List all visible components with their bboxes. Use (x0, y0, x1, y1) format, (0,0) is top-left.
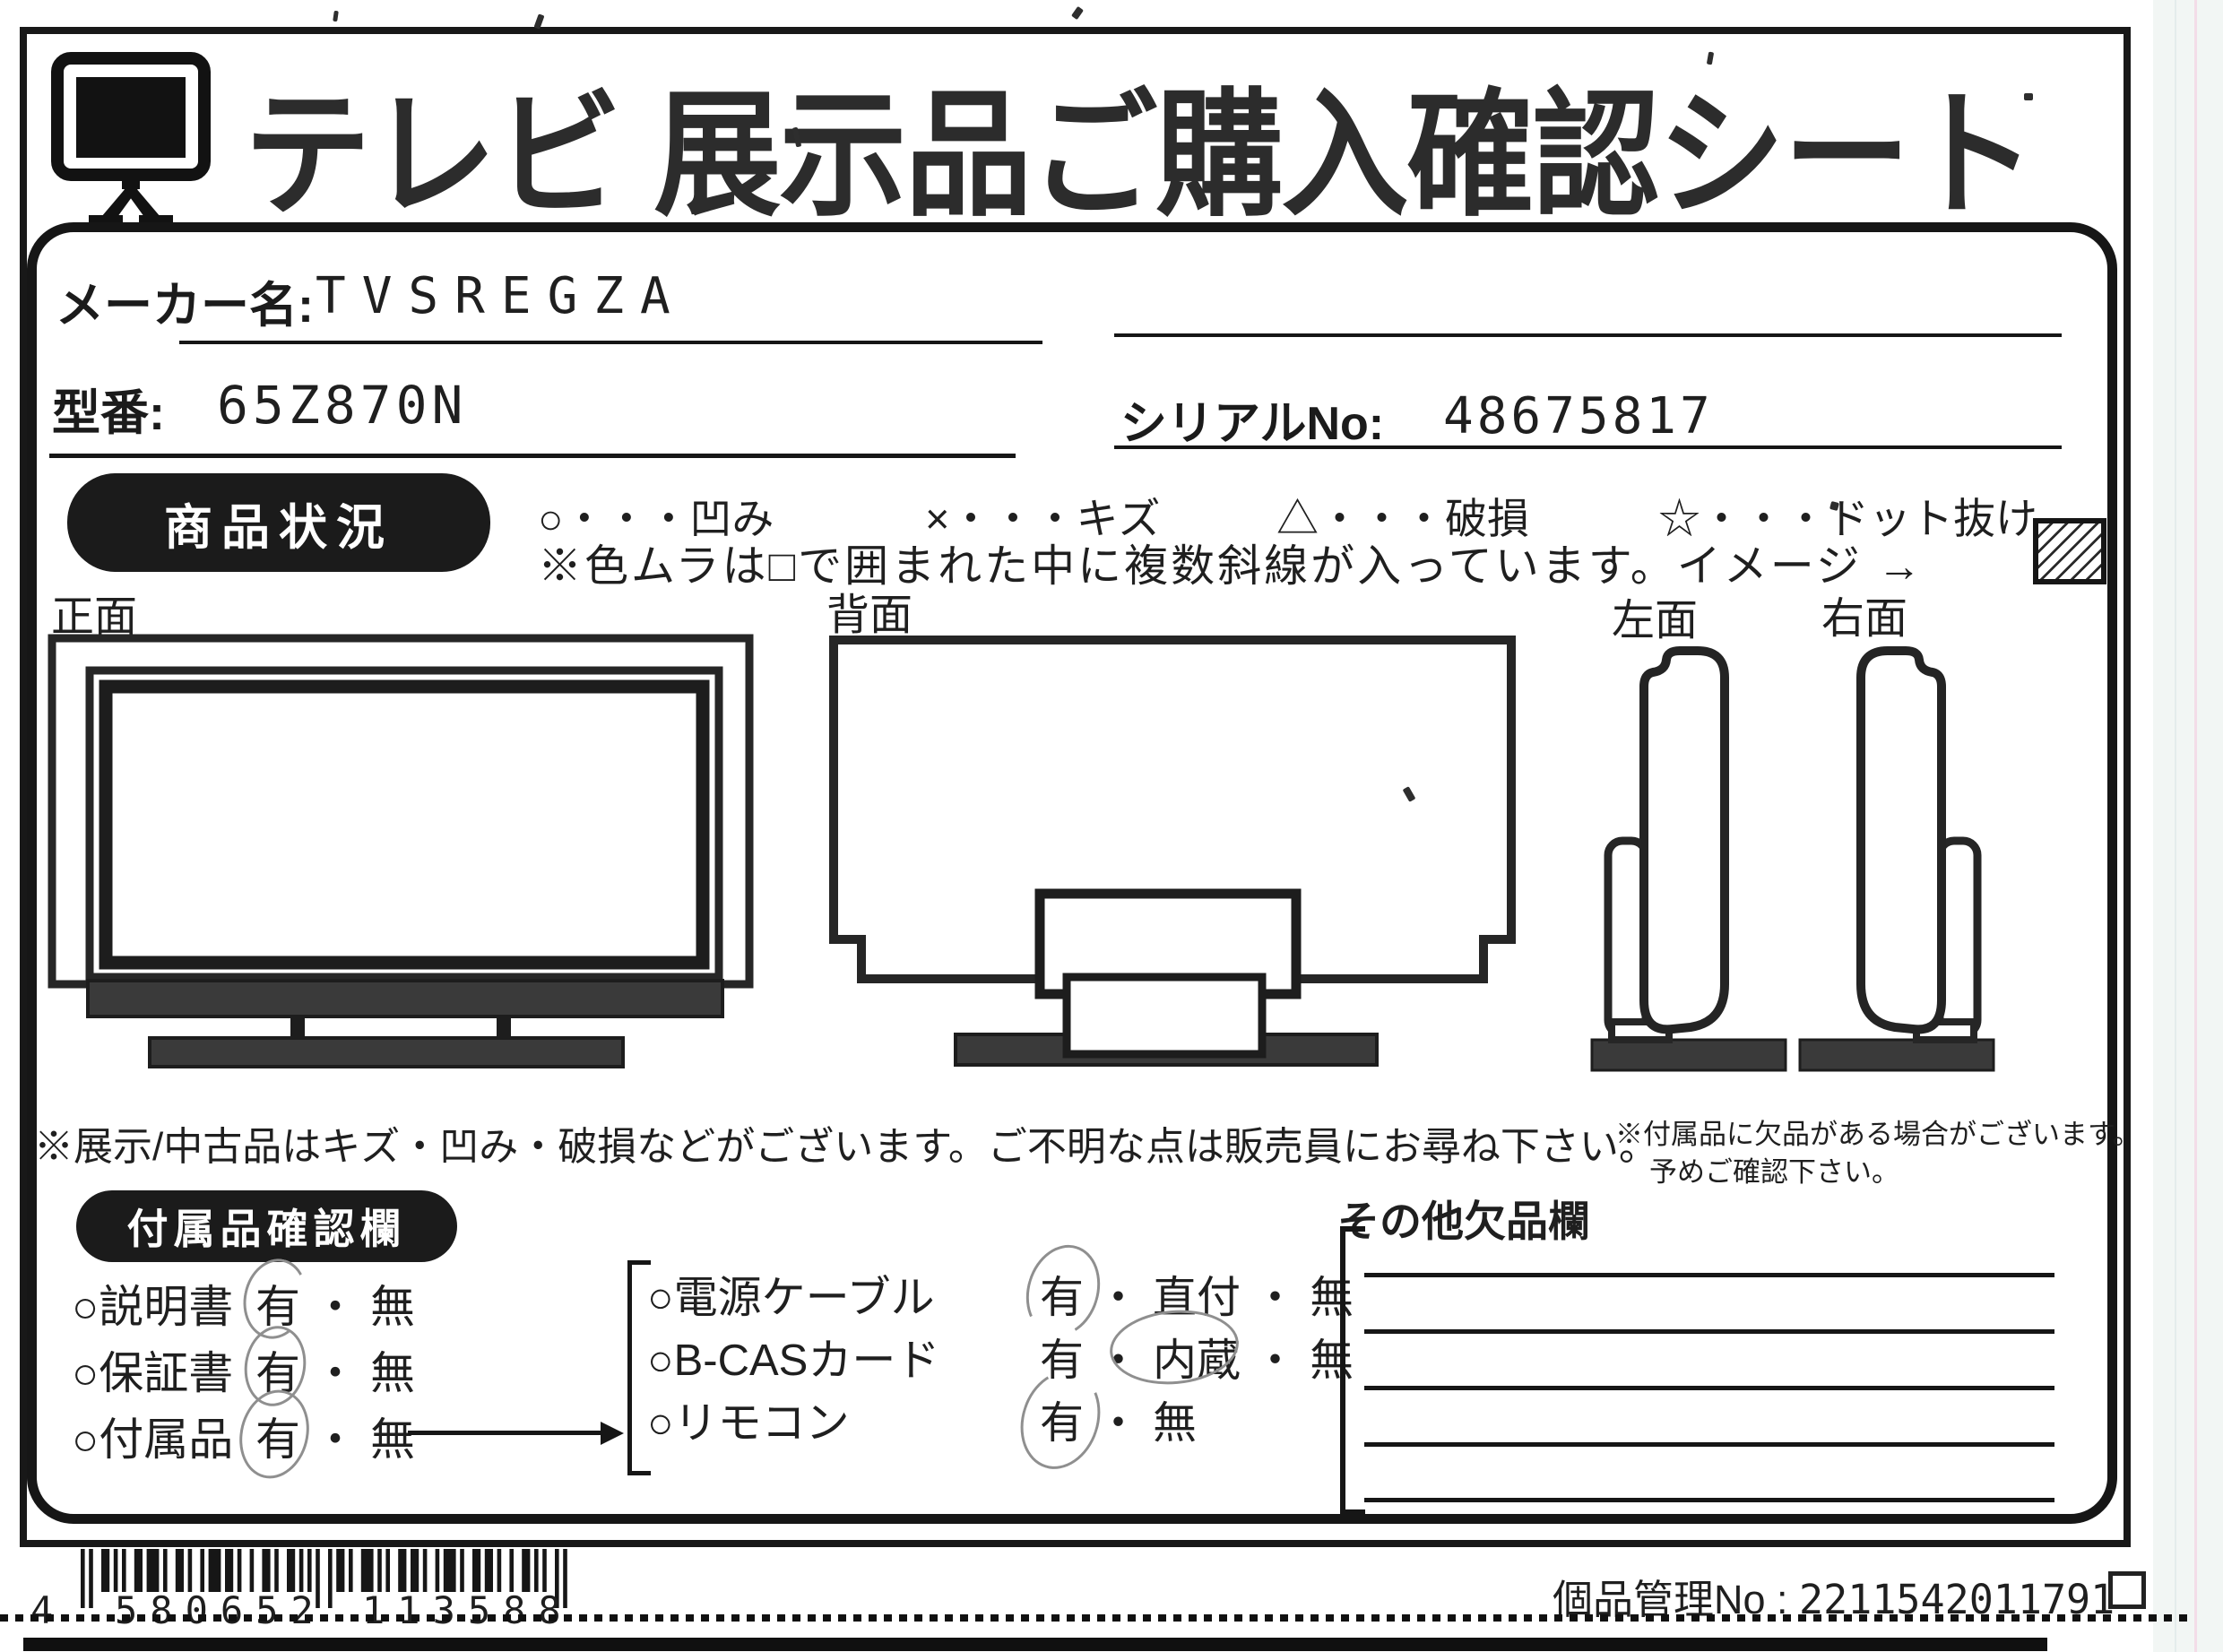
maker-value: TVSREGZA (316, 267, 687, 325)
option-separator: ・ (1253, 1274, 1297, 1322)
maker-label: メーカー名: (56, 265, 314, 336)
accessory-badge-label: 付属品確認欄 (127, 1197, 407, 1256)
model-underline (49, 454, 1016, 458)
option-separator: ・ (1253, 1336, 1297, 1385)
dotted-separator (0, 1614, 2187, 1622)
barcode-digit-first: 4 (30, 1588, 53, 1632)
option-separator: ・ (313, 1348, 358, 1398)
tv-back-diagram (823, 629, 1531, 1073)
scan-edge-line-pink (2194, 0, 2197, 1652)
scan-edge-line-gray (2175, 0, 2176, 1652)
accessory-item-accessories: ○付属品 (72, 1404, 233, 1468)
scanned-sheet: テレビ 展示品ご購入確認シート メーカー名: TVSREGZA 型番: 65Z8… (0, 0, 2223, 1652)
accessory-item-bcas-card: ○B-CASカード (647, 1325, 939, 1388)
missing-items-bracket (1340, 1226, 1365, 1515)
tv-right-side-diagram (1793, 629, 2001, 1077)
scan-speck (1071, 6, 1084, 20)
tv-front-diagram (47, 629, 759, 1073)
maker-underline (179, 341, 1042, 344)
option-separator: ・ (313, 1282, 358, 1332)
condition-badge-label: 商品状況 (164, 488, 394, 558)
color-unevenness-note: ※色ムラは□で囲まれた中に複数斜線が入っています。イメージ → (538, 531, 1924, 594)
accessory-item-manual: ○説明書 (72, 1271, 233, 1336)
management-checkbox (2108, 1571, 2146, 1609)
option-nashi: 無 (370, 1414, 415, 1465)
tv-left-side-diagram (1585, 629, 1793, 1077)
page-title: テレビ 展示品ご購入確認シート (244, 43, 2034, 242)
maker-underline-right (1114, 333, 2062, 337)
accessory-item-warranty: ○保証書 (72, 1337, 233, 1402)
tv-icon (49, 50, 215, 238)
option-separator: ・ (1096, 1274, 1140, 1322)
missing-items-line-5 (1364, 1498, 2054, 1502)
display-item-note: ※展示/中古品はキズ・凹み・破損などがございます。ご不明な点は販売員にお尋ね下さ… (34, 1114, 1658, 1172)
missing-items-line-1 (1364, 1273, 2054, 1277)
accessory-shortage-note-line2: 予めご確認下さい。 (1649, 1149, 1899, 1189)
option-nashi: 無 (1153, 1399, 1197, 1448)
model-label: 型番: (52, 373, 165, 444)
missing-items-line-2 (1364, 1329, 2054, 1334)
accessory-arrow-head (601, 1422, 624, 1445)
scan-speck (2024, 93, 2033, 100)
model-value: 65Z870N (217, 375, 467, 436)
bottom-black-bar (23, 1638, 2047, 1651)
hatch-sample-box (2033, 518, 2106, 584)
accessory-item-power-cable: ○電源ケーブル (647, 1262, 935, 1326)
serial-label: シリアルNo: (1120, 385, 1384, 453)
scan-speck (333, 11, 339, 22)
accessory-item-remote: ○リモコン (647, 1388, 850, 1451)
barcode-digits-group2: 113588 (362, 1588, 574, 1632)
accessory-shortage-note-line1: ※付属品に欠品がある場合がございます。 (1615, 1111, 2141, 1152)
option-separator: ・ (1096, 1399, 1140, 1448)
serial-value: 48675817 (1443, 387, 1714, 445)
option-separator: ・ (313, 1414, 358, 1465)
accessory-badge: 付属品確認欄 (76, 1190, 457, 1262)
missing-items-title: その他欠品欄 (1337, 1187, 1590, 1249)
option-nashi: 無 (370, 1348, 415, 1398)
accessory-arrow-line (408, 1431, 603, 1435)
condition-badge: 商品状況 (67, 473, 490, 572)
barcode-digits-group1: 580652 (115, 1588, 326, 1632)
scan-edge-strip (2153, 0, 2223, 1652)
option-nashi: 無 (370, 1282, 415, 1332)
missing-items-line-4 (1364, 1442, 2054, 1447)
serial-underline (1114, 445, 2062, 449)
missing-items-line-3 (1364, 1386, 2054, 1390)
